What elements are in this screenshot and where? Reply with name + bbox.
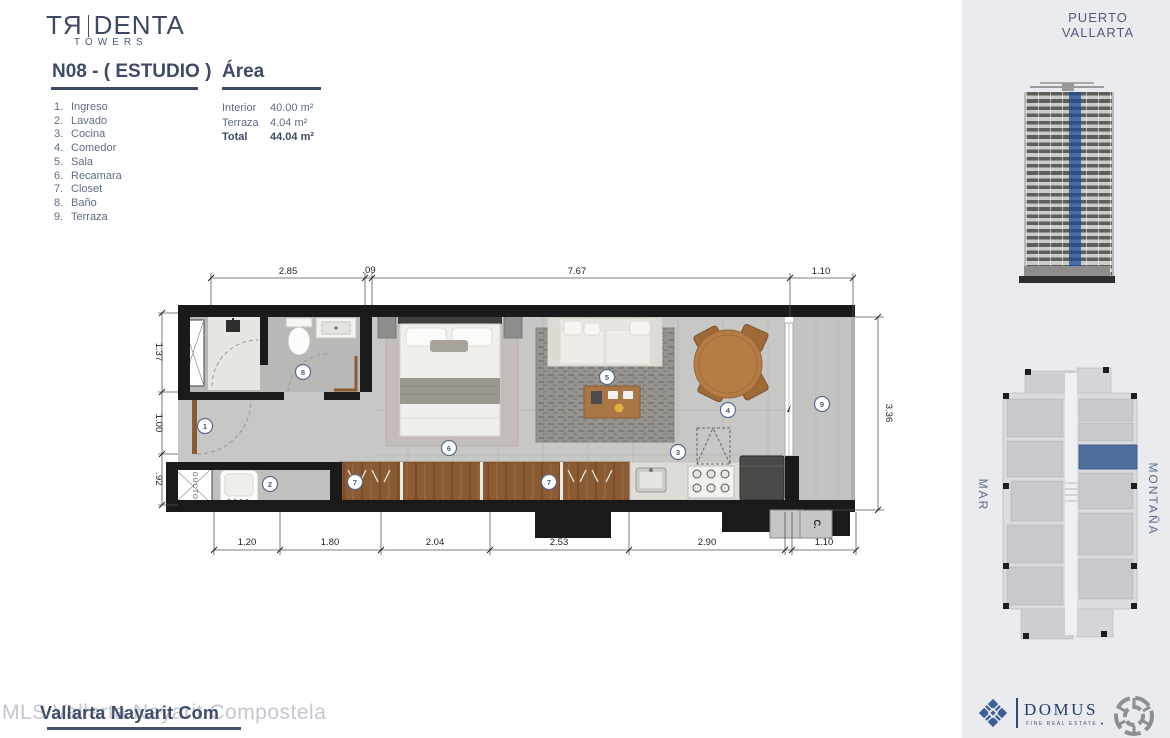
svg-text:8: 8 xyxy=(301,368,305,377)
mar-label: MAR xyxy=(976,465,990,525)
area-row: Terraza4.04 m² xyxy=(222,116,314,131)
legend-item: 4.Comedor xyxy=(54,142,122,156)
tower-unit-stack-highlight xyxy=(1069,92,1081,276)
key-plan xyxy=(995,365,1145,645)
mls-watermark-dark: Vallarta Nayarit Com xyxy=(40,703,219,724)
area-title-rule xyxy=(222,87,321,90)
dining-furniture xyxy=(693,324,769,403)
badge-cocina: 3 xyxy=(671,445,686,460)
location-title: PUERTO VALLARTA xyxy=(1036,10,1160,40)
dim-bottom-6: 1.10 xyxy=(815,537,834,548)
svg-text:7: 7 xyxy=(353,478,357,487)
area-row: Interior40.00 m² xyxy=(222,101,314,116)
dim-top-2: .09 xyxy=(362,265,375,276)
terrace-glass-door xyxy=(785,323,793,456)
badge-recamara: 6 xyxy=(442,441,457,456)
area-title: Área xyxy=(222,61,264,83)
badge-bano: 8 xyxy=(296,365,311,380)
svg-text:6: 6 xyxy=(447,444,451,453)
floor-plan: C. DUCTO xyxy=(148,260,908,570)
brand-logo-pre: TЯ xyxy=(46,10,83,40)
area-table: Interior40.00 m² Terraza4.04 m² Total44.… xyxy=(222,101,314,145)
tower-roof-box xyxy=(1062,83,1074,91)
area-row-total: Total44.04 m² xyxy=(222,130,314,145)
montana-label: MONTAÑA xyxy=(1146,444,1160,554)
brochure-page: TЯDENTA TOWERS N08 - ( ESTUDIO ) Área 1.… xyxy=(0,0,1170,738)
svg-text:5: 5 xyxy=(605,373,609,382)
badge-closet-2: 7 xyxy=(542,475,557,490)
legend-item: 2.Lavado xyxy=(54,115,122,129)
legend-item: 7.Closet xyxy=(54,183,122,197)
floor-plan-svg: C. DUCTO xyxy=(148,260,908,570)
domus-logo-tagline: FINE REAL ESTATE ● xyxy=(1026,721,1105,727)
dim-bottom-5: 2.90 xyxy=(698,537,717,548)
key-plan-unit-highlight xyxy=(1079,445,1137,469)
tower-ground-floor xyxy=(1024,266,1110,276)
key-plan-plate xyxy=(1003,367,1137,639)
badge-terraza: 9 xyxy=(815,397,830,412)
svg-text:9: 9 xyxy=(820,400,824,409)
dim-top-4: 1.10 xyxy=(812,266,831,277)
dim-left-2: 1.00 xyxy=(153,414,164,433)
badge-closet-1: 7 xyxy=(348,475,363,490)
unit-title-rule xyxy=(51,87,198,90)
legend-item: 8.Baño xyxy=(54,197,122,211)
dim-top-3: 7.67 xyxy=(568,266,587,277)
badge-lavado: 2 xyxy=(263,477,278,492)
watermark-underline xyxy=(47,727,241,730)
dim-top-1: 2.85 xyxy=(279,266,298,277)
svg-text:7: 7 xyxy=(547,478,551,487)
mandala-logo-icon xyxy=(1112,694,1156,738)
domus-logo-divider xyxy=(1016,698,1018,728)
badge-ingreso: 1 xyxy=(198,419,213,434)
bed-furniture xyxy=(378,316,522,446)
brand-logo-post: DENTA xyxy=(94,10,185,40)
legend-item: 1.Ingreso xyxy=(54,101,122,115)
dim-right-1: 3.36 xyxy=(883,404,894,423)
legend-item: 3.Cocina xyxy=(54,128,122,142)
badge-comedor: 4 xyxy=(721,403,736,418)
room-legend: 1.Ingreso 2.Lavado 3.Cocina 4.Comedor 5.… xyxy=(54,101,122,224)
key-plan-svg xyxy=(995,365,1145,645)
dim-left-3: .92 xyxy=(153,472,164,485)
tower-base xyxy=(1019,276,1115,283)
legend-item: 6.Recamara xyxy=(54,170,122,184)
unit-title: N08 - ( ESTUDIO ) xyxy=(52,61,211,83)
badge-sala: 5 xyxy=(600,370,615,385)
terrace-closet: C. xyxy=(770,510,832,538)
dim-bottom-2: 1.80 xyxy=(321,537,340,548)
dim-left-1: 1.37 xyxy=(153,343,164,362)
svg-text:1: 1 xyxy=(203,422,207,431)
domus-logo-icon xyxy=(977,697,1009,729)
legend-item: 5.Sala xyxy=(54,156,122,170)
domus-logo-name: DOMUS xyxy=(1024,700,1098,720)
dim-bottom-1: 1.20 xyxy=(238,537,257,548)
legend-item: 9.Terraza xyxy=(54,211,122,225)
dim-bottom-4: 2.53 xyxy=(550,537,569,548)
svg-text:2: 2 xyxy=(268,480,272,489)
dim-bottom-3: 2.04 xyxy=(426,537,445,548)
brand-logo-subtitle: TOWERS xyxy=(74,37,148,48)
closet-c-label: C. xyxy=(812,520,822,529)
brand-logo-divider xyxy=(88,15,89,37)
duct-label: DUCTO xyxy=(191,472,198,500)
svg-text:3: 3 xyxy=(676,448,680,457)
